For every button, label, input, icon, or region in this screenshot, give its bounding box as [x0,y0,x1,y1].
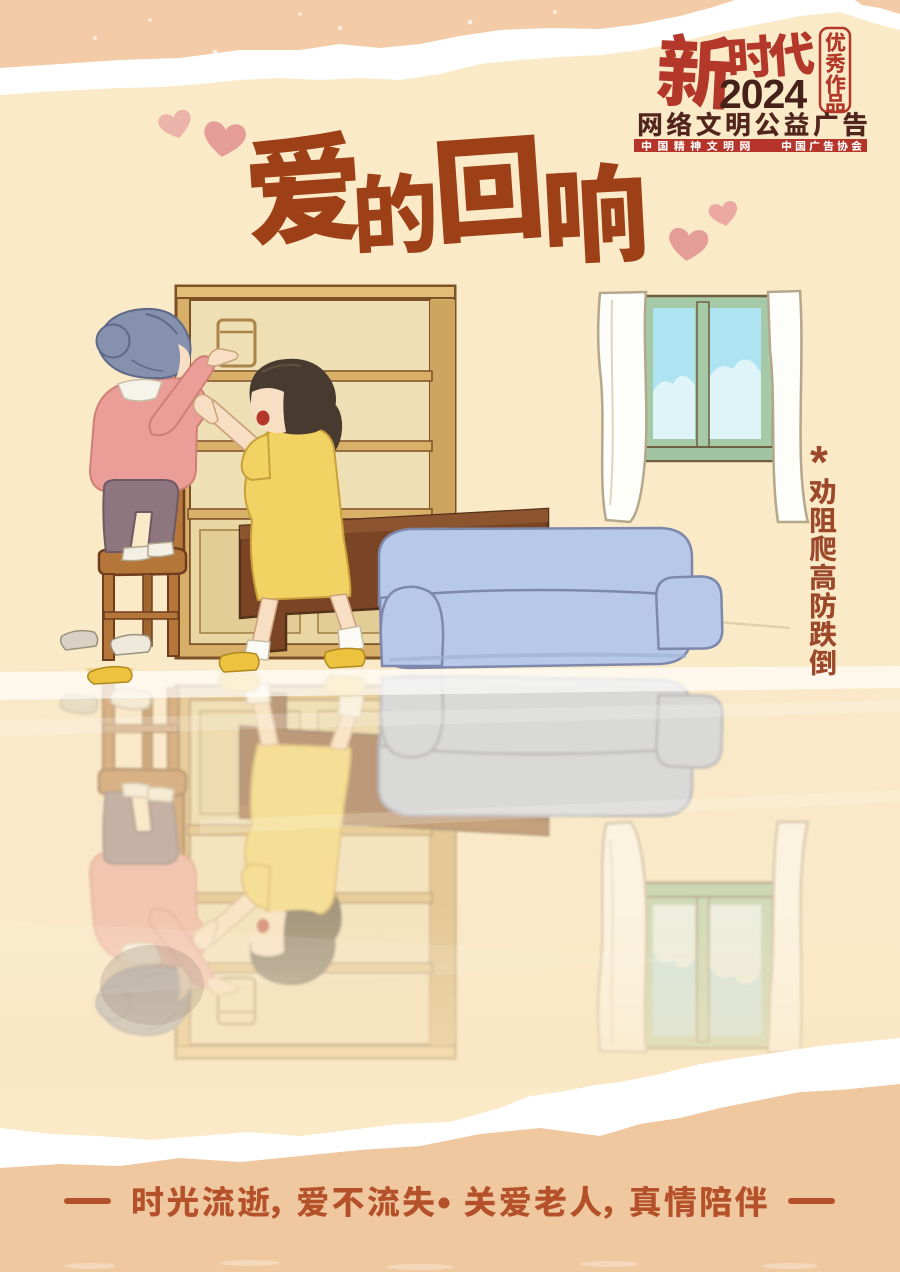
svg-text:2024: 2024 [719,71,807,117]
